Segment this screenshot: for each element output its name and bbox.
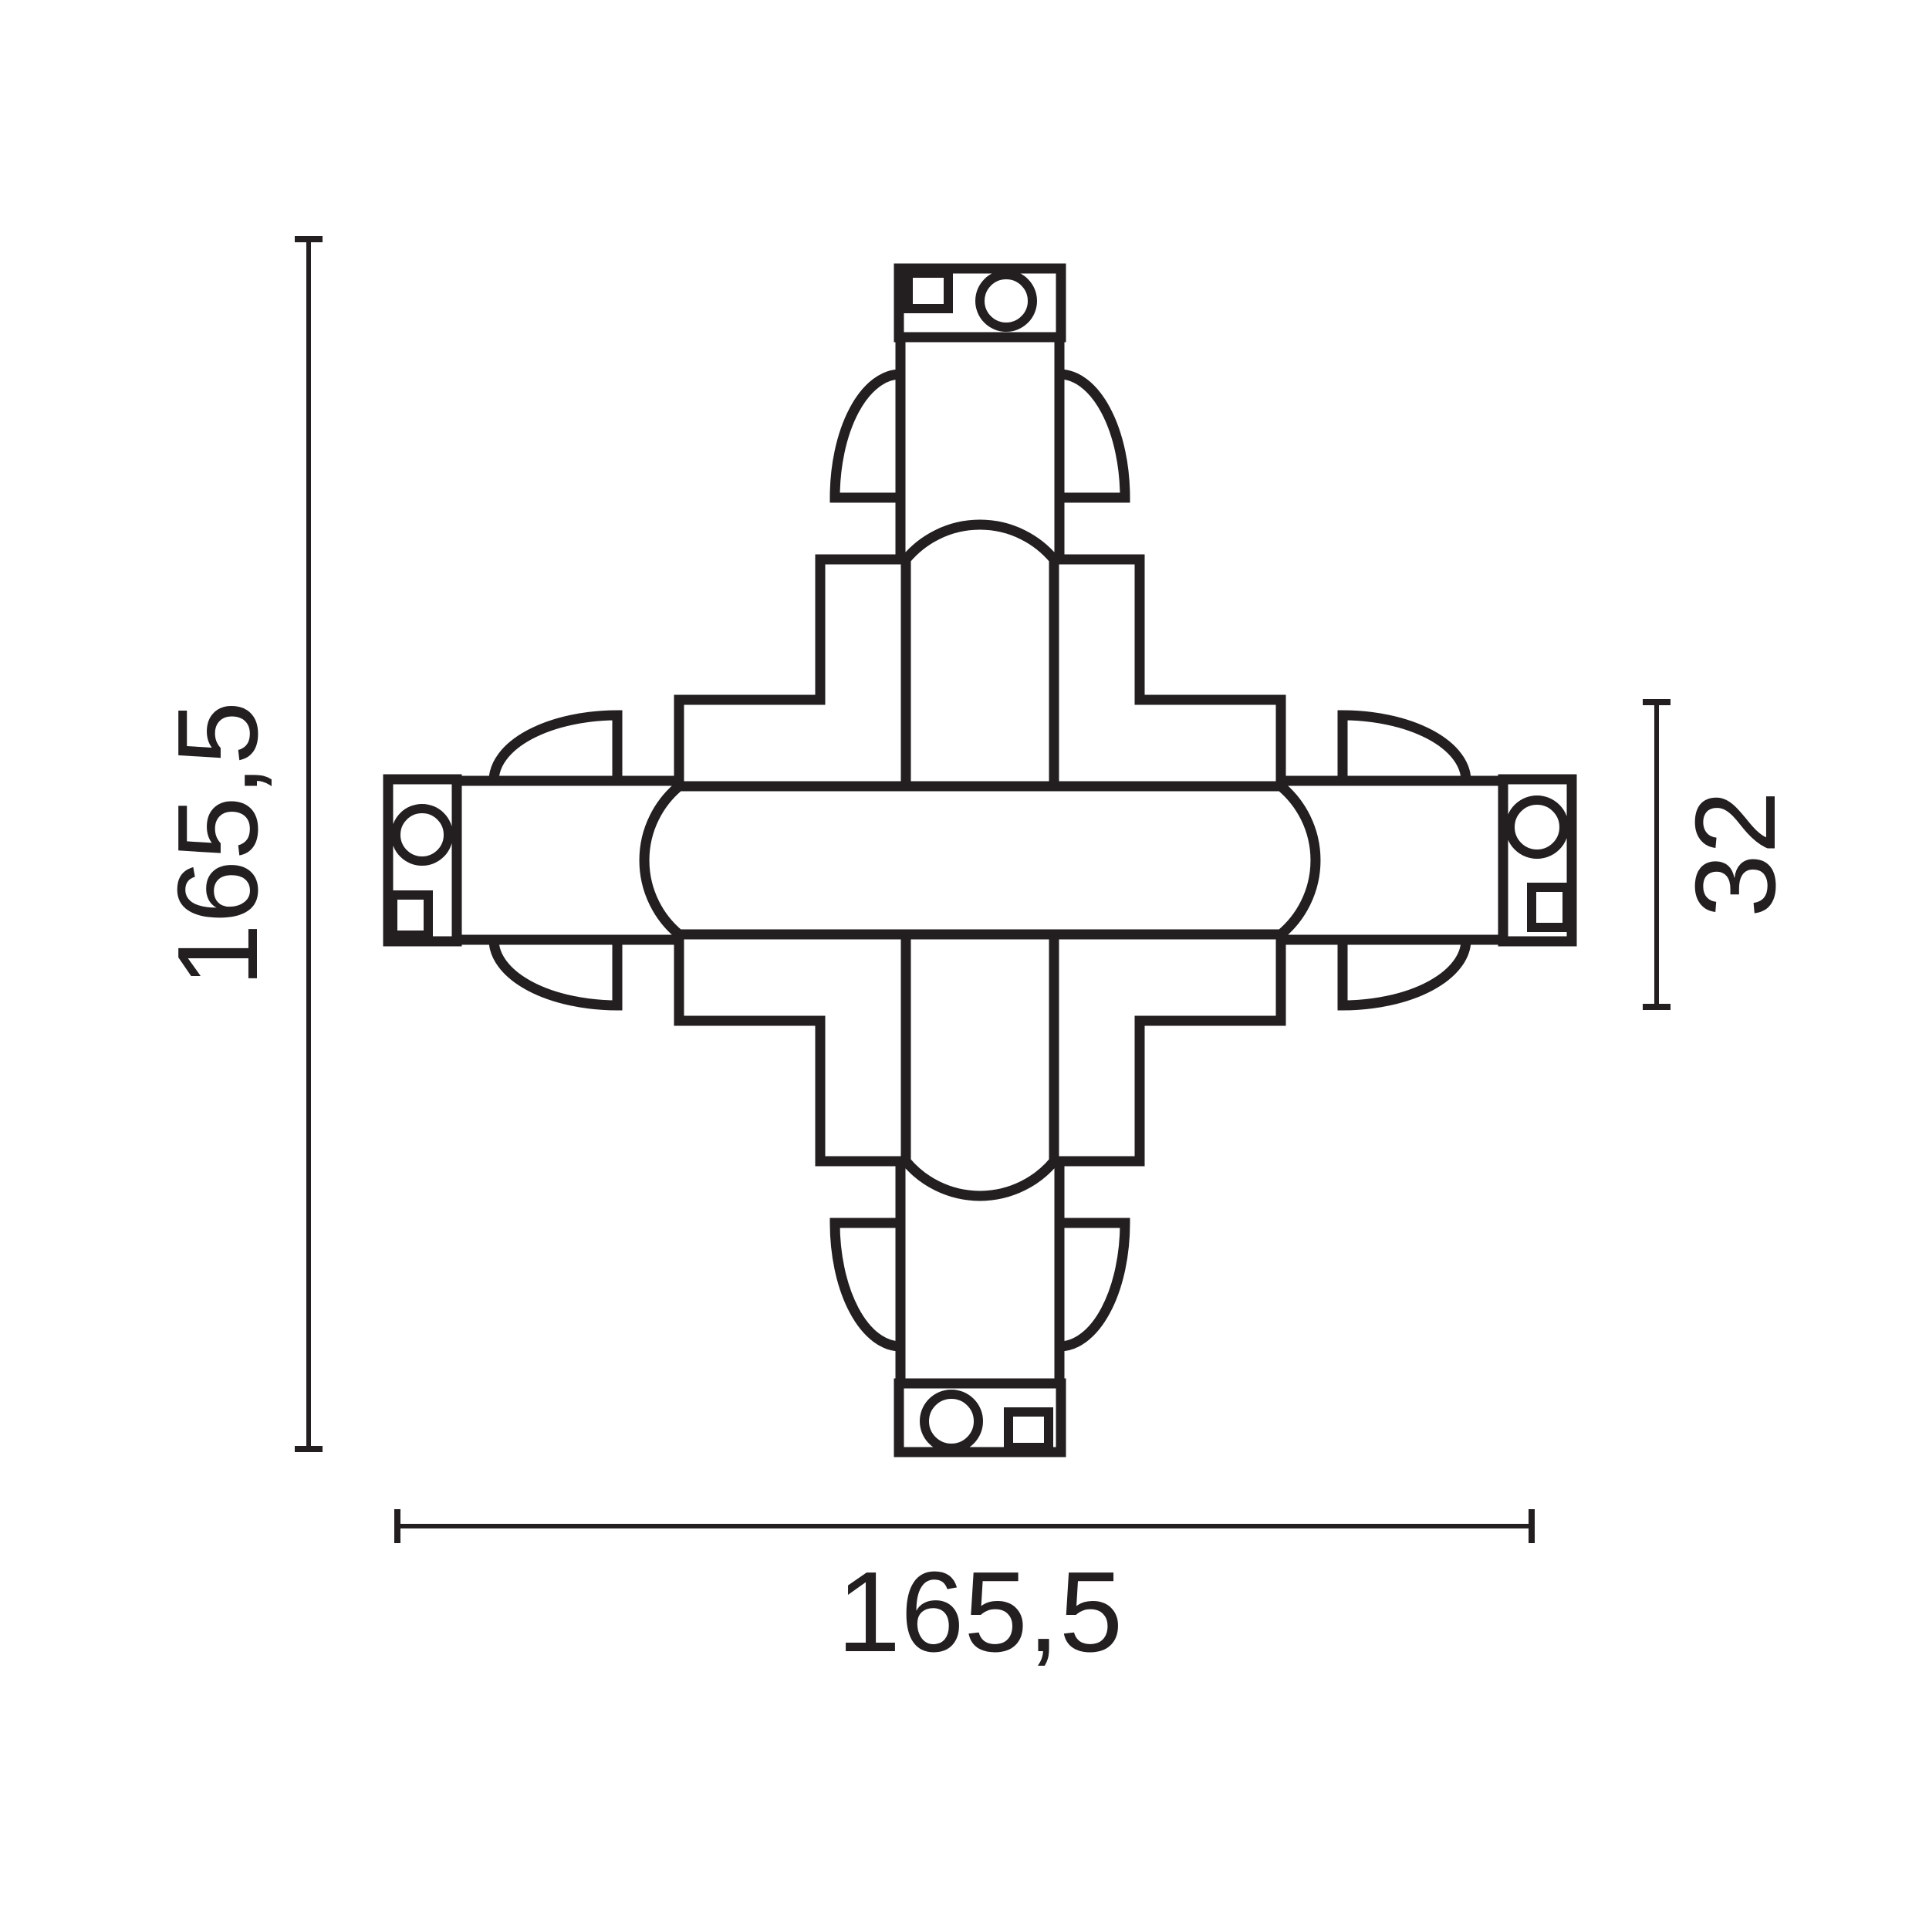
wing-top-right: [1059, 374, 1125, 498]
contact-circle-right: [1510, 800, 1564, 854]
contact-circle-top: [980, 275, 1032, 327]
width-dimension-label: 165,5: [837, 1549, 1123, 1676]
wing-top-left: [835, 374, 900, 498]
connector-diagram: 165,5 165,5 32: [0, 0, 1929, 1932]
connector-pill-horizontal: [644, 786, 1316, 934]
wing-right-lower: [1343, 940, 1466, 1005]
wing-right-upper: [1343, 715, 1466, 781]
wing-bottom-right: [1059, 1223, 1125, 1346]
contact-square-bottom: [1008, 1412, 1049, 1447]
contact-circle-left: [396, 809, 448, 861]
height-dimension-label: 165,5: [154, 701, 282, 987]
wing-left-upper: [494, 715, 617, 781]
wing-left-lower: [494, 940, 617, 1005]
drawing-canvas: 165,5 165,5 32: [0, 0, 1929, 1932]
contact-circle-bottom: [924, 1394, 978, 1448]
wing-bottom-left: [835, 1223, 900, 1346]
side-dimension-label: 32: [1672, 791, 1799, 918]
contact-square-top: [908, 273, 948, 309]
contact-square-left: [393, 895, 428, 935]
contact-square-right: [1532, 887, 1567, 927]
